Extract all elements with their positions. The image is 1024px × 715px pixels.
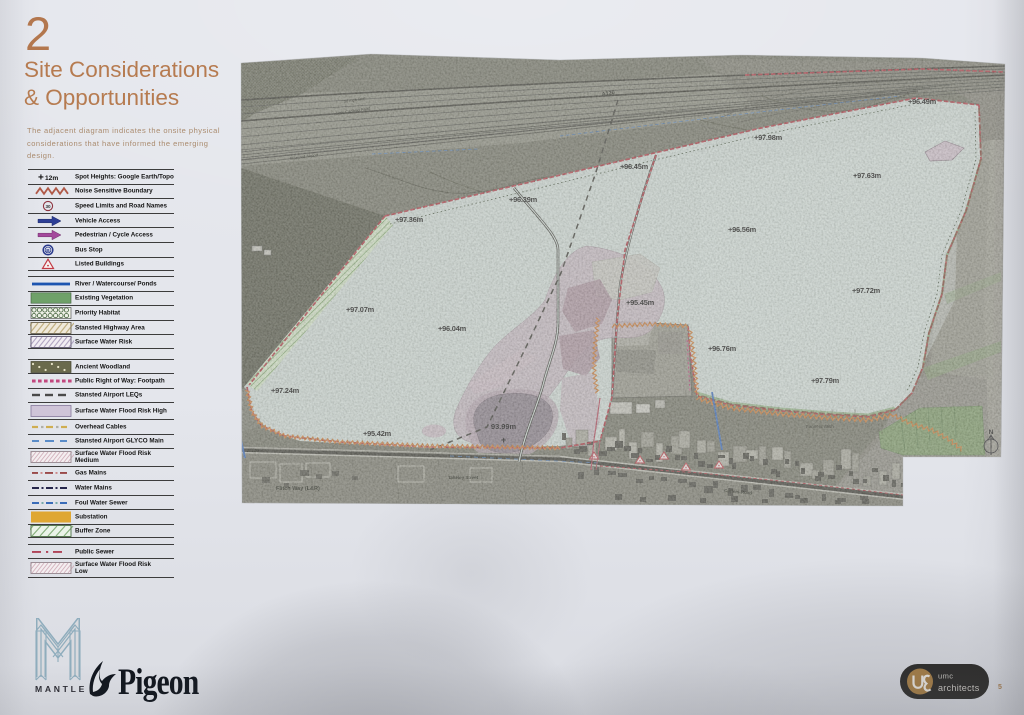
svg-text:5: 5 <box>998 684 1002 691</box>
svg-text:MANTLE: MANTLE <box>35 684 87 694</box>
svg-text:Pigeon: Pigeon <box>118 662 200 703</box>
svg-text:architects: architects <box>938 683 980 693</box>
svg-text:umc: umc <box>938 672 953 681</box>
